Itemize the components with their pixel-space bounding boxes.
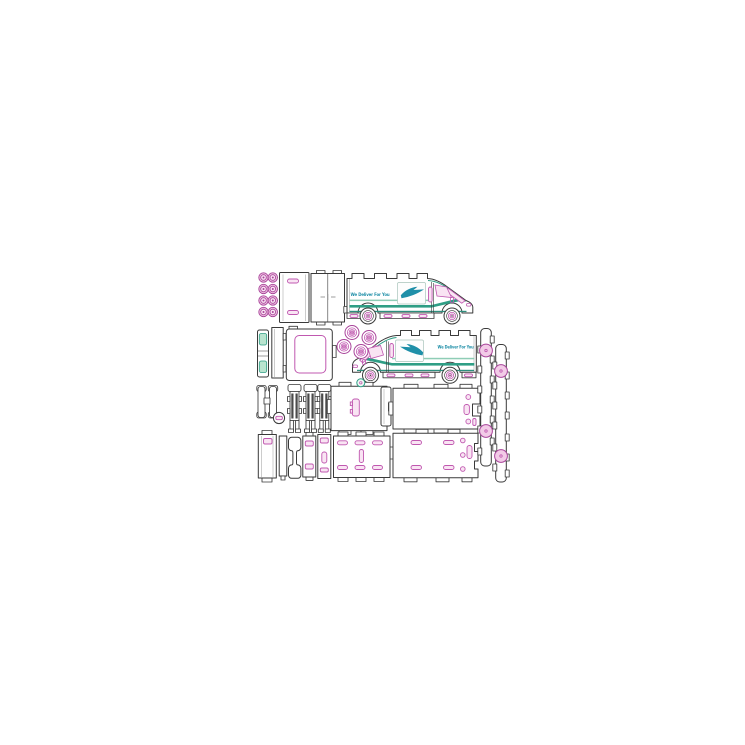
van-side-top-shape <box>350 305 432 308</box>
wheel-icon <box>337 340 351 354</box>
slotted-strip-1-shape <box>305 441 313 446</box>
axle-comb-3-shape <box>318 385 331 392</box>
axle-comb-1-shape <box>291 394 293 419</box>
van-side-bottom-shape <box>465 374 473 377</box>
body-panel-shape <box>411 441 422 445</box>
thin-strip-shape <box>281 476 285 480</box>
axle-comb-2-shape <box>307 394 309 419</box>
zigzag-strip-1-shape <box>478 386 482 393</box>
rear-door-panel <box>286 326 336 380</box>
body-panel-shape <box>444 441 455 445</box>
floor-panel-shape <box>464 405 469 415</box>
van-wheel <box>442 367 458 383</box>
strip-disc-icon <box>480 425 493 438</box>
van-side-top: We Deliver For You <box>344 274 473 325</box>
van-slogan: We Deliver For You <box>438 345 474 351</box>
zigzag-strip-1-shape <box>478 406 482 413</box>
zigzag-strip-2-shape <box>505 392 509 399</box>
h-bracket <box>257 386 278 419</box>
wheel-icon-shape <box>343 346 344 347</box>
zigzag-strip-2-shape <box>493 464 497 471</box>
washer-icon <box>259 296 268 305</box>
zigzag-strip-2-shape <box>505 412 509 419</box>
van-wheel <box>363 367 379 383</box>
zigzag-strip-1-shape <box>478 366 482 373</box>
washer-icon-shape <box>272 277 274 279</box>
teal-cap-icon-shape <box>357 379 365 387</box>
strip-disc-icon <box>495 450 508 463</box>
axle-comb-2-shape <box>312 394 314 419</box>
body-panel-shape <box>461 438 466 443</box>
zigzag-strip-2-shape <box>493 382 497 389</box>
floor-panel-shape <box>473 419 476 426</box>
washer-icon <box>268 284 277 293</box>
axle-comb-1-shape <box>299 397 302 402</box>
wheel-icon <box>362 331 376 345</box>
strip-plain-shape <box>283 334 286 341</box>
axle-comb-3-shape <box>321 394 323 419</box>
slotted-strip-2-shape <box>320 468 328 472</box>
washer-icon-shape <box>263 300 265 302</box>
roof-panel-shape <box>355 466 365 470</box>
roof-panel-shape <box>373 466 383 470</box>
van-side-top-shape <box>384 315 392 318</box>
washer-icon-shape <box>272 311 274 313</box>
axle-comb-1-shape <box>288 397 291 402</box>
van-slogan: We Deliver For You <box>351 292 390 298</box>
slotted-strip-2 <box>318 435 331 479</box>
strip-plain <box>272 328 286 379</box>
axle-comb-1-shape <box>296 394 298 419</box>
wheel-icon-shape <box>351 332 352 333</box>
axle-comb-2-shape <box>305 429 310 433</box>
washer-icon <box>268 273 277 282</box>
body-panel-shape <box>411 466 422 470</box>
front-panel-shape <box>352 399 359 416</box>
panel-two-slots <box>280 273 310 323</box>
h-bracket-shape <box>264 398 270 404</box>
van-wheel-shape <box>449 375 450 376</box>
zigzag-strip-2-shape <box>493 444 497 451</box>
tall-strip <box>258 431 276 483</box>
zigzag-strip-2-shape <box>505 470 509 477</box>
body-panel-shape <box>461 453 466 458</box>
slotted-strip-1 <box>303 433 316 481</box>
washer-icon <box>259 273 268 282</box>
zigzag-strip-1-shape <box>490 336 494 343</box>
van-wheel-shape <box>451 315 452 316</box>
zigzag-strip-2-shape <box>493 402 497 409</box>
axle-comb-3-shape <box>325 429 330 433</box>
zigzag-strip-1 <box>478 329 494 467</box>
strip-disc-icon <box>495 365 508 378</box>
front-panel-shape <box>350 402 352 406</box>
axle-comb-2-shape <box>312 429 317 433</box>
roof-panel-shape <box>338 441 348 445</box>
washer-icon-shape <box>263 311 265 313</box>
van-wheel-shape <box>370 375 371 376</box>
floor-panel-shape <box>466 395 471 400</box>
floor-panel-shape <box>466 419 471 424</box>
van-side-bottom-shape <box>405 374 413 377</box>
zigzag-strip-1-shape <box>478 448 482 455</box>
strip-disc-icon-shape <box>495 365 508 378</box>
van-wheel-shape <box>367 315 368 316</box>
washer-icon <box>259 284 268 293</box>
body-panel-shape <box>461 467 466 472</box>
zigzag-strip-2 <box>493 345 509 483</box>
rear-door-panel-shape <box>332 346 336 358</box>
h-bracket-shape <box>270 387 277 418</box>
strip-disc-icon-shape <box>495 450 508 463</box>
axle-comb-1-shape <box>288 409 291 414</box>
washer-icon-shape <box>272 300 274 302</box>
axle-comb-1 <box>288 385 302 433</box>
axle-comb-2-shape <box>304 385 317 392</box>
van-wheel <box>360 308 376 324</box>
body-panel-shape <box>467 446 472 459</box>
roof-panel <box>334 432 391 482</box>
axle-comb-1-shape <box>299 409 302 414</box>
body-panel <box>389 429 478 482</box>
thin-strip-shape <box>279 436 287 476</box>
van-wheel <box>444 308 460 324</box>
washer-icon <box>259 307 268 316</box>
wheel-icon-shape <box>360 351 361 352</box>
wheel-icon-shape <box>368 337 369 338</box>
ladder-strip <box>258 330 269 377</box>
zigzag-strip-2-shape <box>505 434 509 441</box>
axle-comb-1-shape <box>288 385 301 392</box>
zigzag-strip-2-shape <box>505 352 509 359</box>
tall-strip-shape <box>264 439 273 445</box>
van-side-top-shape <box>402 315 410 318</box>
strip-disc-icon <box>480 344 493 357</box>
strip-plain-shape <box>272 328 283 379</box>
ladder-strip-shape <box>259 334 266 346</box>
strip-disc-icon-shape <box>480 425 493 438</box>
panel-two-slots-shape <box>288 279 299 283</box>
van-side-bottom-shape <box>421 374 429 377</box>
axle-comb-2-shape <box>304 397 307 402</box>
roof-panel-shape <box>373 441 383 445</box>
floor-panel <box>389 384 480 433</box>
dog-bone-strip <box>289 437 301 478</box>
washer-icon-shape <box>263 288 265 290</box>
disc-with-slot <box>273 412 284 423</box>
axle-comb-3-shape <box>317 397 320 402</box>
axle-comb-2-shape <box>304 409 307 414</box>
strip-disc-icon-shape <box>480 344 493 357</box>
wheel-icon <box>345 326 359 340</box>
slotted-strip-1-shape <box>305 464 313 469</box>
washer-grid <box>259 273 278 317</box>
van-side-bottom-shape <box>387 374 395 377</box>
dog-bone-strip-shape <box>289 437 301 478</box>
disc-with-slot-shape <box>276 416 283 419</box>
van-side-top-shape <box>350 315 358 318</box>
axle-comb-1-shape <box>289 429 294 433</box>
van-side-top-shape <box>429 287 433 302</box>
washer-icon <box>268 307 277 316</box>
van-side-top-shape <box>419 315 427 318</box>
axle-comb-2 <box>304 385 318 433</box>
strip-plain-shape <box>283 366 286 373</box>
teal-cap-icon <box>357 379 365 387</box>
washer-icon-shape <box>263 277 265 279</box>
zigzag-strip-2-shape <box>493 422 497 429</box>
canvas: We Deliver For You We Deliver For You <box>0 0 745 745</box>
front-panel-shape <box>350 410 352 414</box>
panel-two-slots-shape <box>288 311 299 315</box>
parts-sheet: We Deliver For You We Deliver For You <box>0 0 745 745</box>
panel-double-door <box>311 271 345 326</box>
van-side-bottom-shape <box>390 344 394 358</box>
ladder-strip-shape <box>259 361 266 373</box>
washer-icon-shape <box>272 288 274 290</box>
van-side-bottom-shape <box>392 363 474 366</box>
axle-comb-3-shape <box>318 429 323 433</box>
slotted-strip-2-shape <box>322 452 327 463</box>
axle-comb-3-shape <box>317 409 320 414</box>
wheel-icon <box>354 345 368 359</box>
slotted-strip-2-shape <box>320 438 328 443</box>
axle-comb-1-shape <box>296 429 301 433</box>
body-panel-shape <box>444 466 455 470</box>
roof-panel-shape <box>355 441 365 445</box>
thin-strip <box>279 436 287 480</box>
roof-panel-shape <box>338 466 348 470</box>
roof-panel-shape <box>359 450 363 463</box>
washer-icon <box>268 296 277 305</box>
